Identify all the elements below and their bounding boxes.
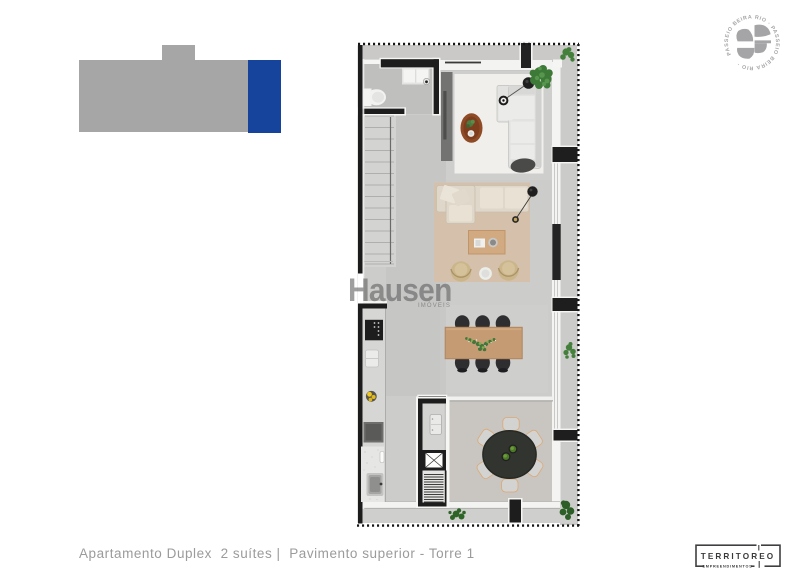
svg-text:EMPREENDIMENTOS: EMPREENDIMENTOS bbox=[703, 564, 753, 568]
svg-text:TERRITOREO: TERRITOREO bbox=[701, 552, 776, 561]
svg-text:PASSEIO BEIRA RIO · PASSEIO BE: PASSEIO BEIRA RIO · PASSEIO BEIRA RIO · bbox=[724, 14, 780, 70]
